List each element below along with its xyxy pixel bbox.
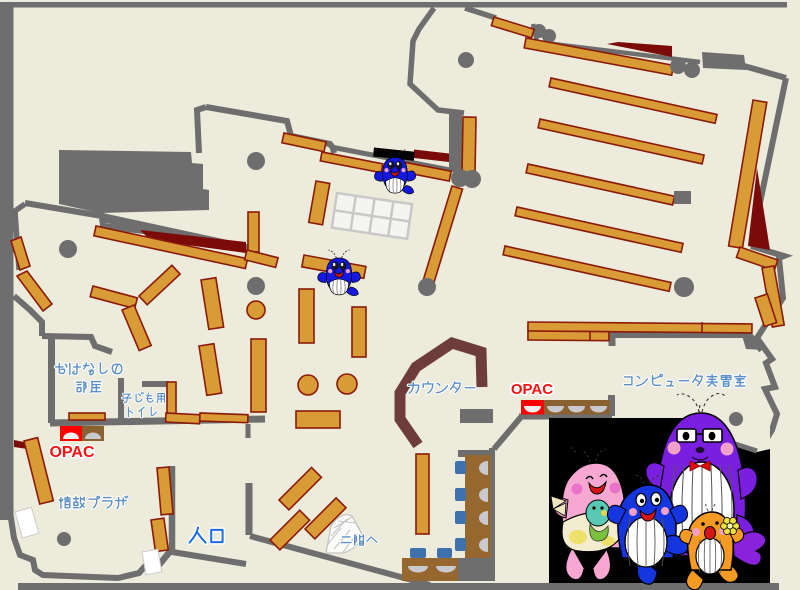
svg-text:OPAC: OPAC [511,381,553,398]
svg-text:OPAC: OPAC [49,444,94,461]
